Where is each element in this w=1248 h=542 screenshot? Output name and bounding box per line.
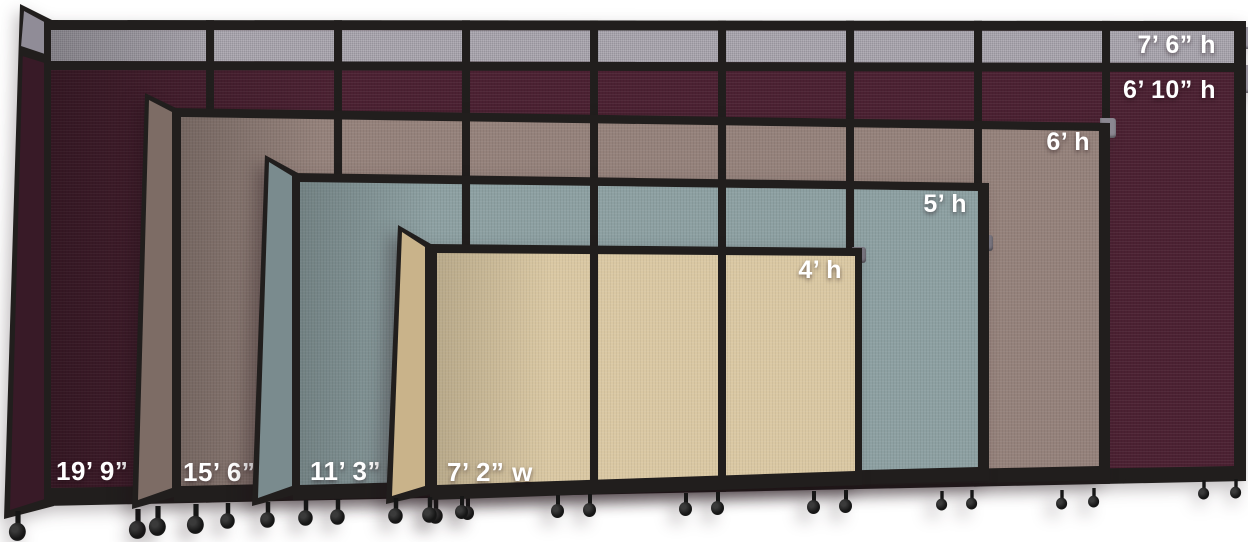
height-label-7ft6: 7’ 6” h: [1137, 33, 1216, 58]
caster-wheel: [455, 496, 469, 522]
caster-wheel: [1088, 488, 1100, 510]
panel-seam: [590, 241, 598, 508]
caster-wheel: [149, 506, 167, 540]
caster-wheel: [679, 493, 693, 519]
room-divider-size-comparison: 7’ 6” h 6’ 10” h 19’ 9” w 6’ h 15’ 6” w …: [0, 0, 1248, 542]
caster-wheel: [9, 511, 27, 542]
caster-wheel: [330, 499, 346, 528]
caster-wheel: [422, 497, 438, 526]
caster-wheel: [388, 498, 404, 527]
divider-7ft2: 4’ h 7’ 2” w: [430, 241, 862, 508]
caster-wheel: [1198, 480, 1210, 502]
caster-wheel: [936, 491, 948, 513]
caster-wheel: [583, 494, 597, 520]
caster-wheel: [966, 490, 978, 512]
floor-foot: [1110, 479, 1126, 503]
caster-wheel: [839, 490, 853, 516]
caster-wheel: [551, 495, 565, 521]
caster-wheel: [1056, 490, 1068, 512]
caster-wheel: [711, 492, 725, 518]
height-label-6ft10: 6’ 10” h: [1123, 78, 1216, 103]
divider-7ft2-panels: 4’ h 7’ 2” w: [430, 241, 862, 508]
height-label-6ft: 6’ h: [1046, 130, 1090, 155]
caster-wheel: [260, 502, 276, 531]
height-label-5ft: 5’ h: [923, 192, 967, 217]
caster-wheel: [187, 504, 205, 538]
height-label-4ft: 4’ h: [798, 258, 842, 283]
caster-wheel: [298, 500, 314, 529]
width-label-7ft2: 7’ 2” w: [447, 459, 533, 485]
caster-wheel: [807, 491, 821, 517]
end-panel-7ft2: [384, 224, 435, 504]
caster-wheel: [220, 503, 236, 532]
caster-wheel: [1230, 479, 1242, 501]
panel-seam: [718, 241, 726, 508]
